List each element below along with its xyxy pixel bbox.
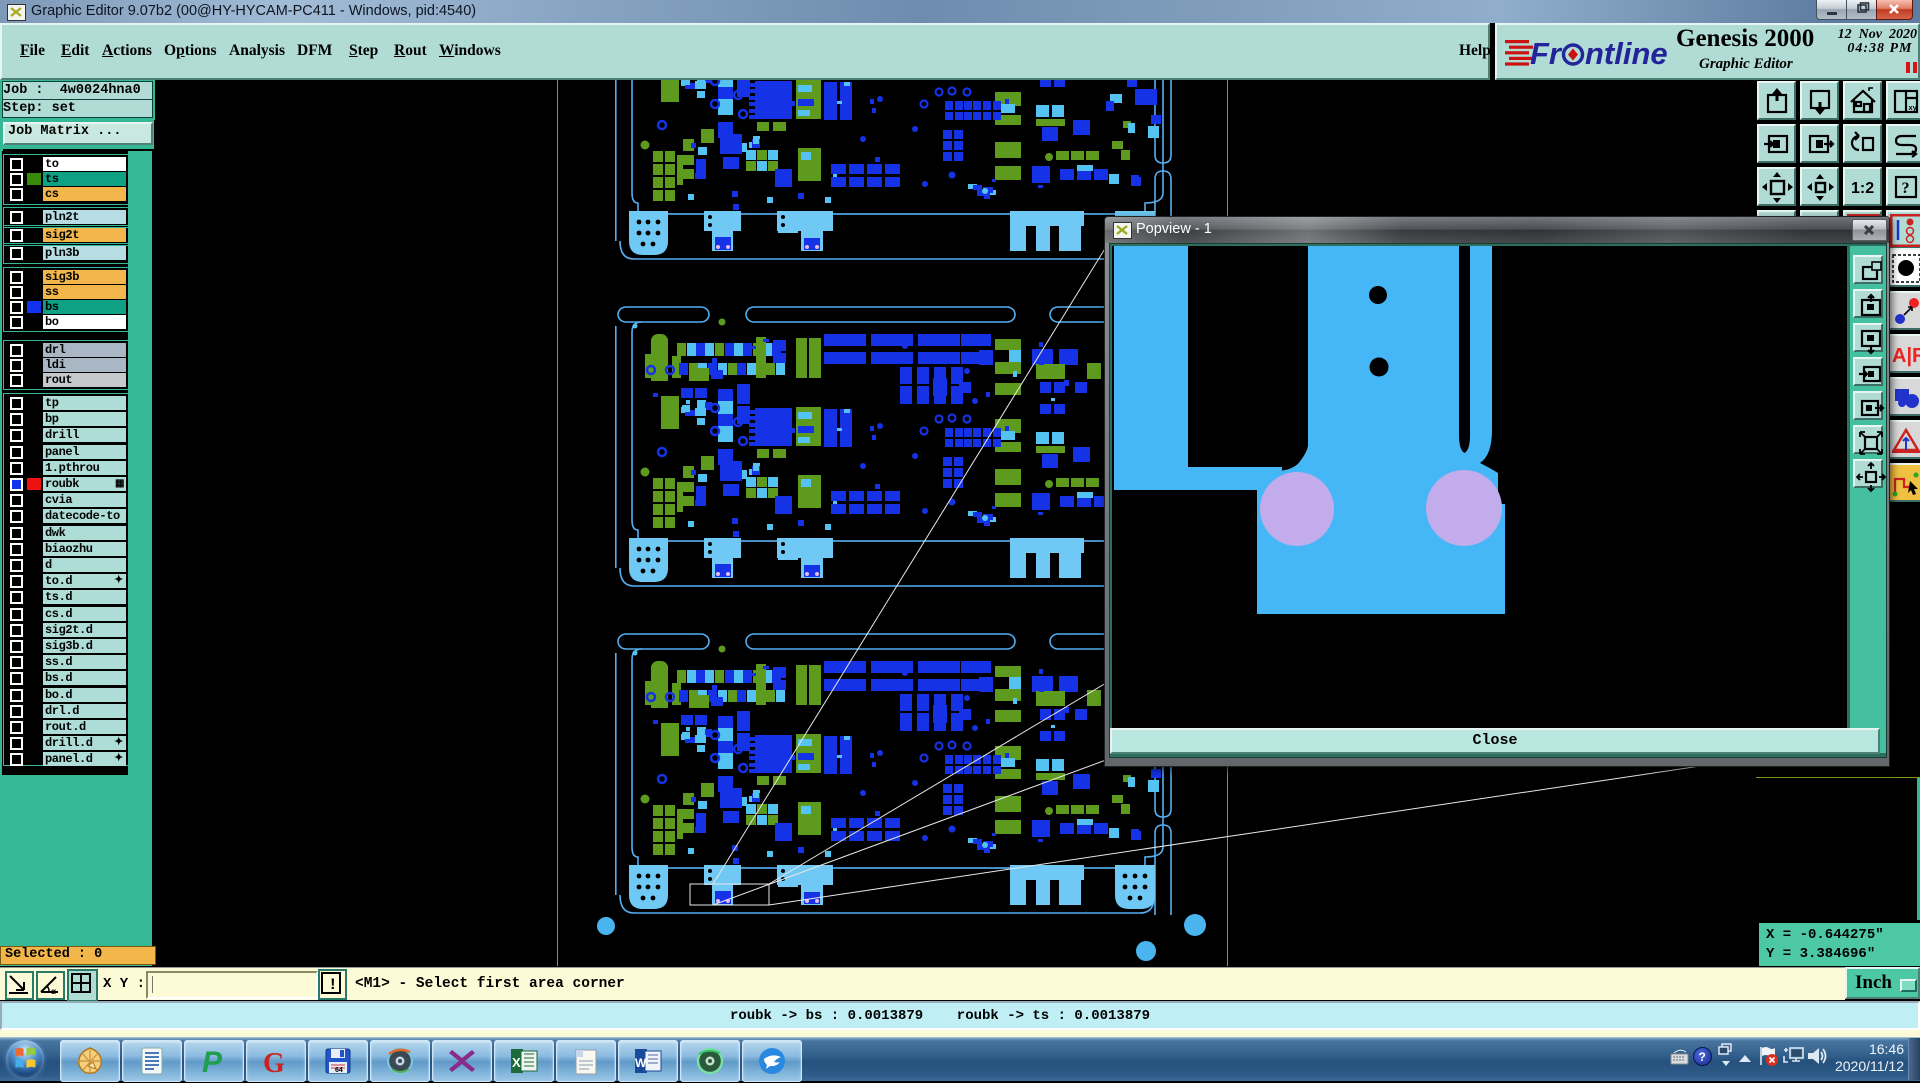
svg-text:Fr: Fr [1530, 36, 1563, 71]
svg-text:64: 64 [335, 1067, 343, 1074]
svg-text:W: W [635, 1056, 647, 1070]
svg-text:ntline: ntline [1585, 36, 1668, 71]
svg-text:xy: xy [1909, 103, 1918, 112]
svg-text:?: ? [1902, 180, 1910, 197]
svg-text:P: P [202, 1046, 223, 1077]
svg-text:1:2: 1:2 [1851, 180, 1874, 197]
svg-text:A|F: A|F [1892, 345, 1920, 367]
svg-text:?: ? [1699, 1050, 1706, 1064]
svg-text:!: ! [328, 976, 338, 994]
svg-text:X: X [512, 1055, 521, 1070]
svg-text:α: α [51, 987, 56, 996]
svg-text:G: G [263, 1048, 285, 1077]
